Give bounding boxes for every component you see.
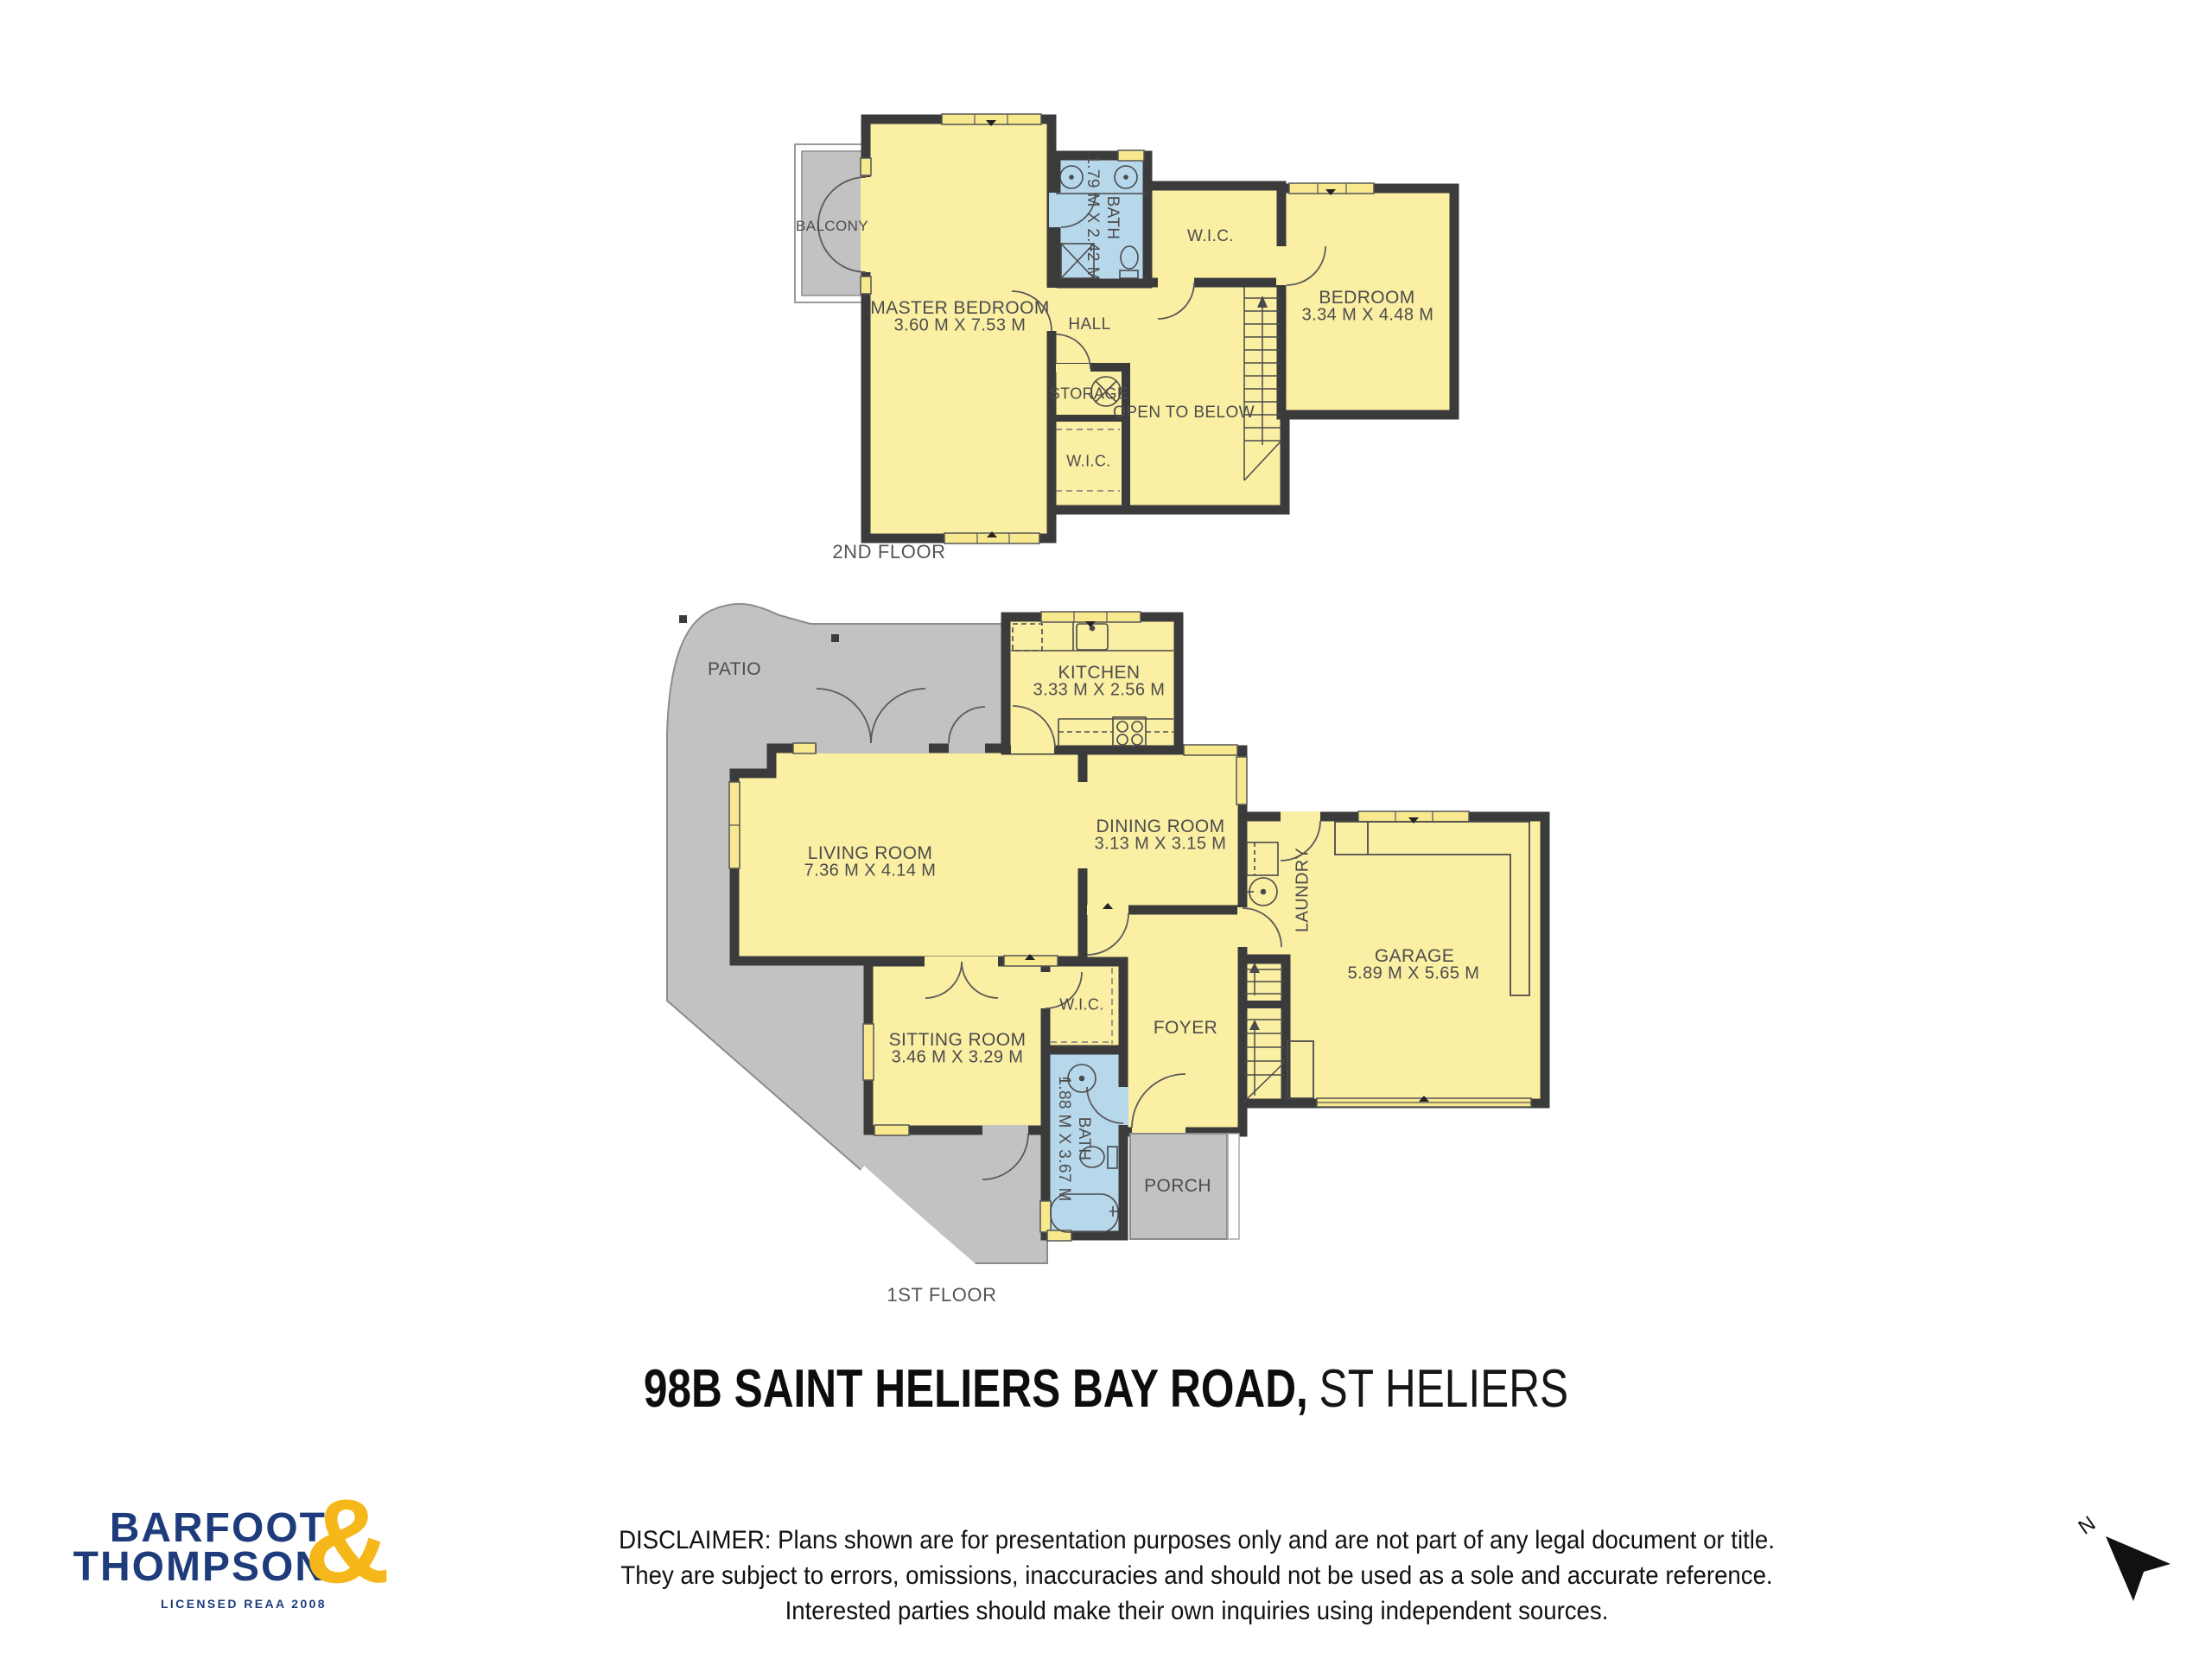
label-bath-1f-name: BATH	[1074, 1076, 1094, 1201]
label-bath-2f: BATH 1.79 M X 2.42 M	[1083, 155, 1122, 280]
label-hall: HALL	[1068, 315, 1110, 334]
label-patio: PATIO	[708, 659, 761, 680]
label-wic-top: W.I.C.	[1187, 227, 1234, 246]
logo-thompson: THOMPSON	[52, 1548, 327, 1586]
barfoot-thompson-logo: BARFOOT THOMPSON	[52, 1509, 327, 1586]
north-arrow-icon	[2106, 1536, 2171, 1601]
label-bath-1f-dims: 1.88 M X 3.67 M	[1054, 1076, 1074, 1201]
label-living-room-dims: 7.36 M X 4.14 M	[804, 861, 937, 881]
address-suburb: ST HELIERS	[1319, 1358, 1569, 1420]
label-master-bedroom-dims: 3.60 M X 7.53 M	[894, 316, 1027, 336]
label-dining-room-dims: 3.13 M X 3.15 M	[1095, 835, 1227, 855]
disclaimer-line-3: Interested parties should make their own…	[581, 1593, 1813, 1629]
label-bath-2f-name: BATH	[1103, 155, 1122, 280]
label-bedroom-dims: 3.34 M X 4.48 M	[1302, 306, 1434, 326]
label-porch: PORCH	[1144, 1176, 1211, 1197]
label-wic-lower: W.I.C.	[1066, 453, 1110, 471]
logo-tagline: LICENSED REAA 2008	[52, 1597, 327, 1611]
patio-post	[679, 615, 687, 623]
label-laundry: LAUNDRY	[1294, 848, 1313, 932]
label-wic-1f: W.I.C.	[1059, 996, 1103, 1014]
logo-ampersand: &	[304, 1490, 391, 1593]
logo-barfoot: BARFOOT	[52, 1509, 327, 1548]
label-open-to-below: OPEN TO BELOW	[1113, 404, 1255, 423]
label-bath-2f-dims: 1.79 M X 2.42 M	[1083, 155, 1103, 280]
floorplan-page: BALCONY MASTER BEDROOM 3.60 M X 7.53 M B…	[0, 0, 2212, 1659]
address-street: 98B SAINT HELIERS BAY ROAD,	[644, 1358, 1308, 1420]
patio-post	[831, 634, 839, 642]
property-address-title: 98B SAINT HELIERS BAY ROAD, ST HELIERS	[221, 1358, 1991, 1420]
label-storage: STORAGE	[1050, 385, 1128, 404]
disclaimer-line-2: They are subject to errors, omissions, i…	[581, 1558, 1813, 1593]
label-sitting-room-dims: 3.46 M X 3.29 M	[892, 1048, 1024, 1068]
label-second-floor: 2ND FLOOR	[832, 541, 945, 563]
label-garage-dims: 5.89 M X 5.65 M	[1348, 964, 1480, 984]
label-first-floor: 1ST FLOOR	[887, 1284, 996, 1306]
label-bath-1f: BATH 1.88 M X 3.67 M	[1054, 1076, 1094, 1201]
label-foyer: FOYER	[1154, 1018, 1217, 1039]
porch-curb	[1228, 1134, 1239, 1239]
disclaimer-line-1: DISCLAIMER: Plans shown are for presenta…	[581, 1522, 1813, 1558]
label-balcony: BALCONY	[796, 218, 868, 235]
disclaimer-text: DISCLAIMER: Plans shown are for presenta…	[581, 1522, 1813, 1629]
label-kitchen-dims: 3.33 M X 2.56 M	[1033, 681, 1166, 701]
